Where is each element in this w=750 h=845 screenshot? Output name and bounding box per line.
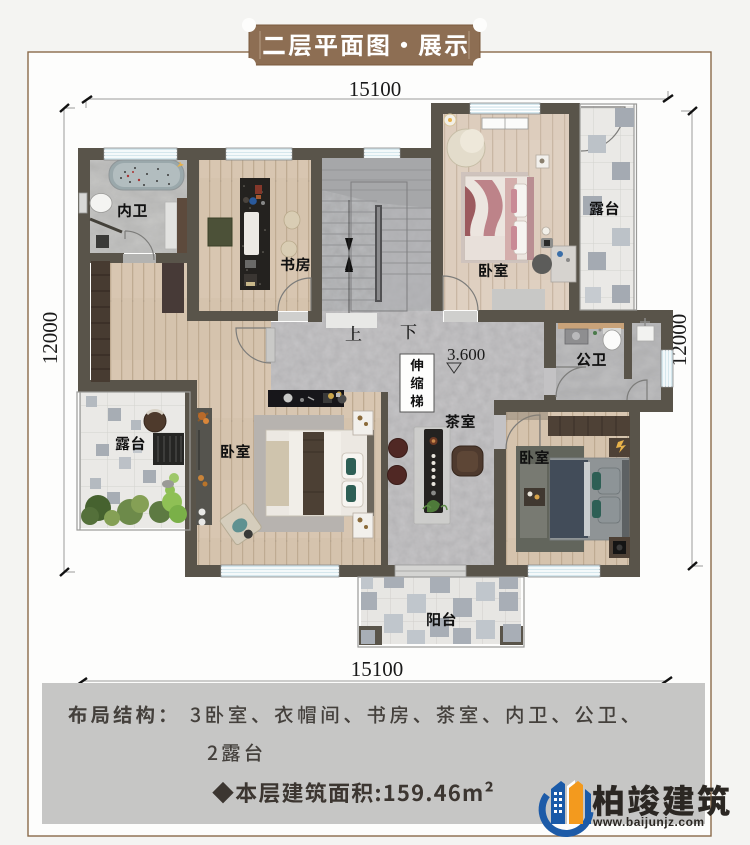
svg-text:15100: 15100	[351, 657, 404, 681]
svg-text:3.600: 3.600	[447, 345, 485, 364]
svg-text:15100: 15100	[349, 77, 402, 101]
svg-text:www.baijunjz.com: www.baijunjz.com	[592, 815, 705, 829]
svg-text:12000: 12000	[38, 312, 62, 365]
